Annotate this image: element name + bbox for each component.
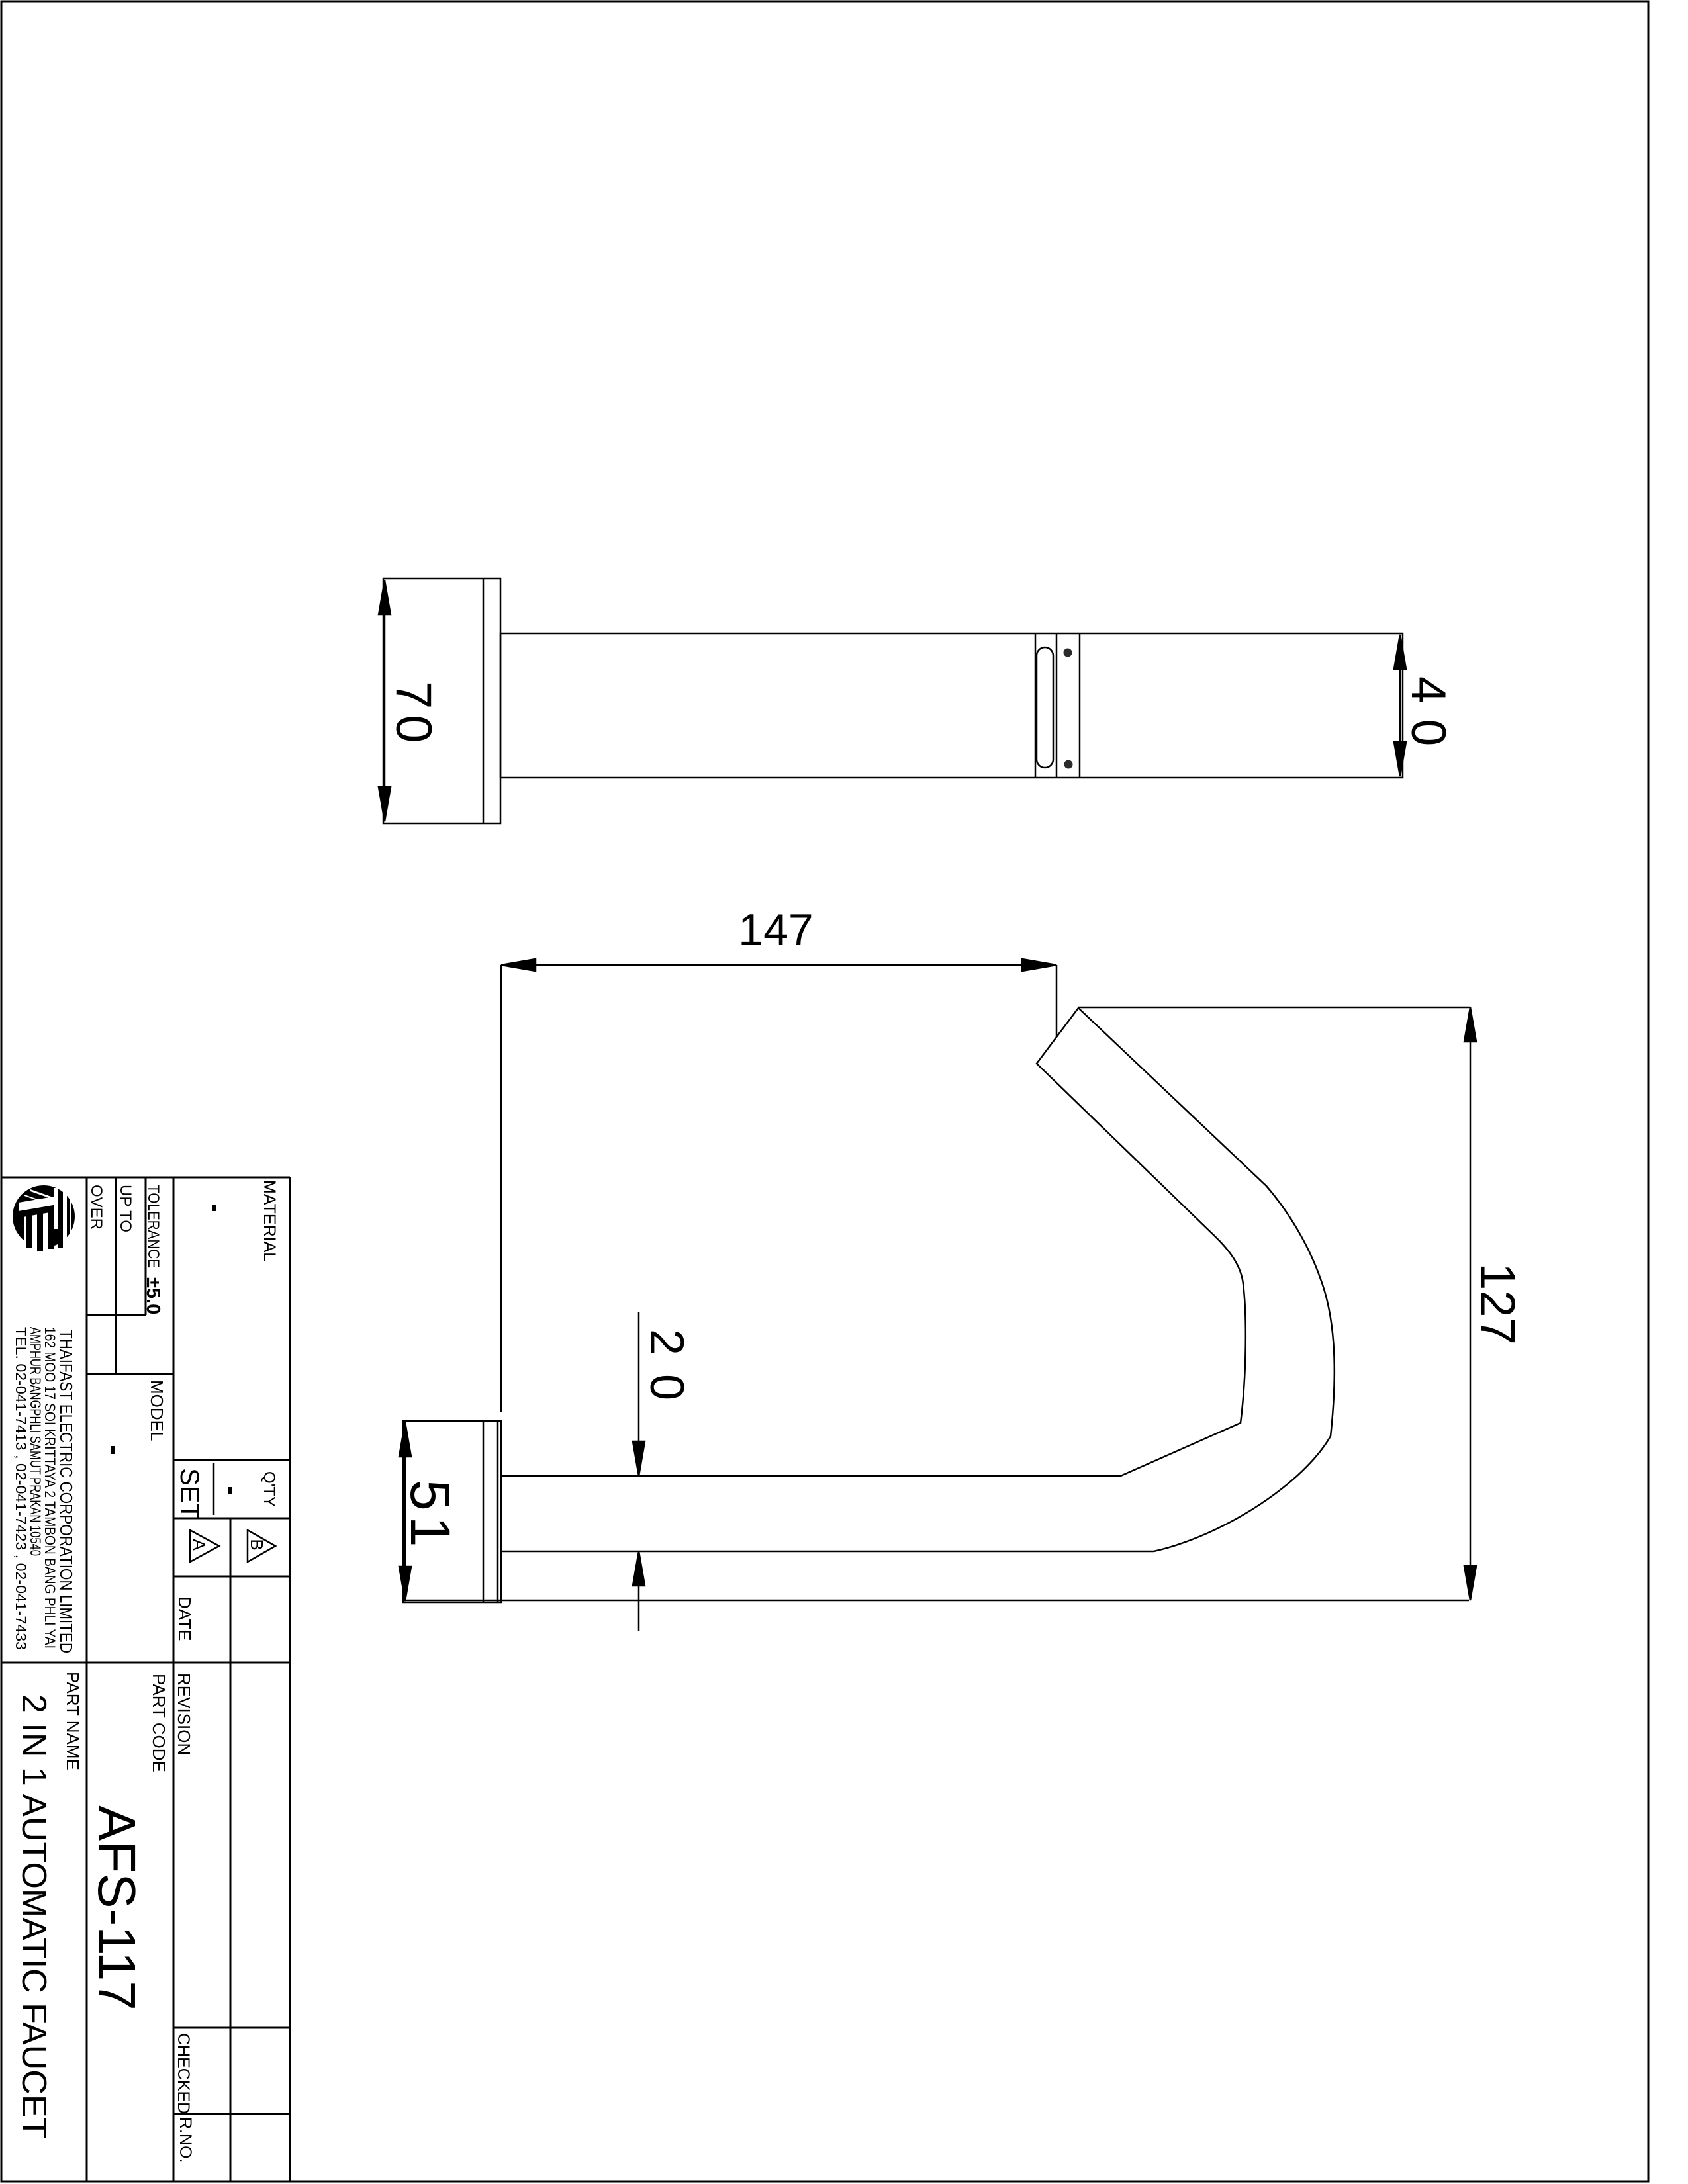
svg-text:51: 51 [399, 1480, 461, 1552]
svg-text:OVER: OVER [87, 1185, 105, 1230]
svg-text:2 IN 1 AUTOMATIC FAUCET: 2 IN 1 AUTOMATIC FAUCET [15, 1694, 53, 2138]
svg-text:TEL. 02-041-7413 , 02-041-7423: TEL. 02-041-7413 , 02-041-7423 , 02-041-… [13, 1327, 29, 1650]
svg-text:R.NO.: R.NO. [176, 2117, 195, 2163]
svg-text:162 MOO 17 SOI KRITTAYA 2 TAMB: 162 MOO 17 SOI KRITTAYA 2 TAMBON BANG PH… [42, 1327, 58, 1649]
svg-text:UP TO: UP TO [117, 1185, 134, 1232]
svg-text:B: B [247, 1539, 267, 1550]
svg-text:AMPHUR BANGPHLI SAMUT PRAKAN 1: AMPHUR BANGPHLI SAMUT PRAKAN 10540 [27, 1327, 44, 1556]
svg-text:THAIFAST ELECTRIC CORPORATION: THAIFAST ELECTRIC CORPORATION LIMITED [56, 1330, 76, 1653]
svg-text:MODEL: MODEL [147, 1380, 167, 1441]
svg-text:Q'TY: Q'TY [260, 1471, 278, 1507]
svg-text:A: A [189, 1539, 209, 1551]
svg-text:MATERIAL: MATERIAL [260, 1180, 279, 1261]
svg-text:PART NAME: PART NAME [63, 1672, 83, 1770]
svg-text:DATE: DATE [175, 1596, 195, 1641]
svg-text:40: 40 [1401, 676, 1455, 762]
svg-text:147: 147 [738, 905, 813, 955]
svg-text:±5.0: ±5.0 [142, 1277, 164, 1314]
svg-text:70: 70 [385, 681, 442, 749]
svg-text:127: 127 [1470, 1263, 1525, 1344]
svg-text:CHECKED: CHECKED [174, 2033, 193, 2114]
svg-text:SET: SET [175, 1468, 204, 1520]
svg-text:AFS-117: AFS-117 [87, 1805, 146, 2011]
svg-text:REVISION: REVISION [174, 1673, 194, 1755]
svg-text:20: 20 [640, 1329, 693, 1419]
svg-text:TOLERANCE: TOLERANCE [144, 1185, 162, 1268]
svg-text:PART CODE: PART CODE [149, 1674, 169, 1772]
